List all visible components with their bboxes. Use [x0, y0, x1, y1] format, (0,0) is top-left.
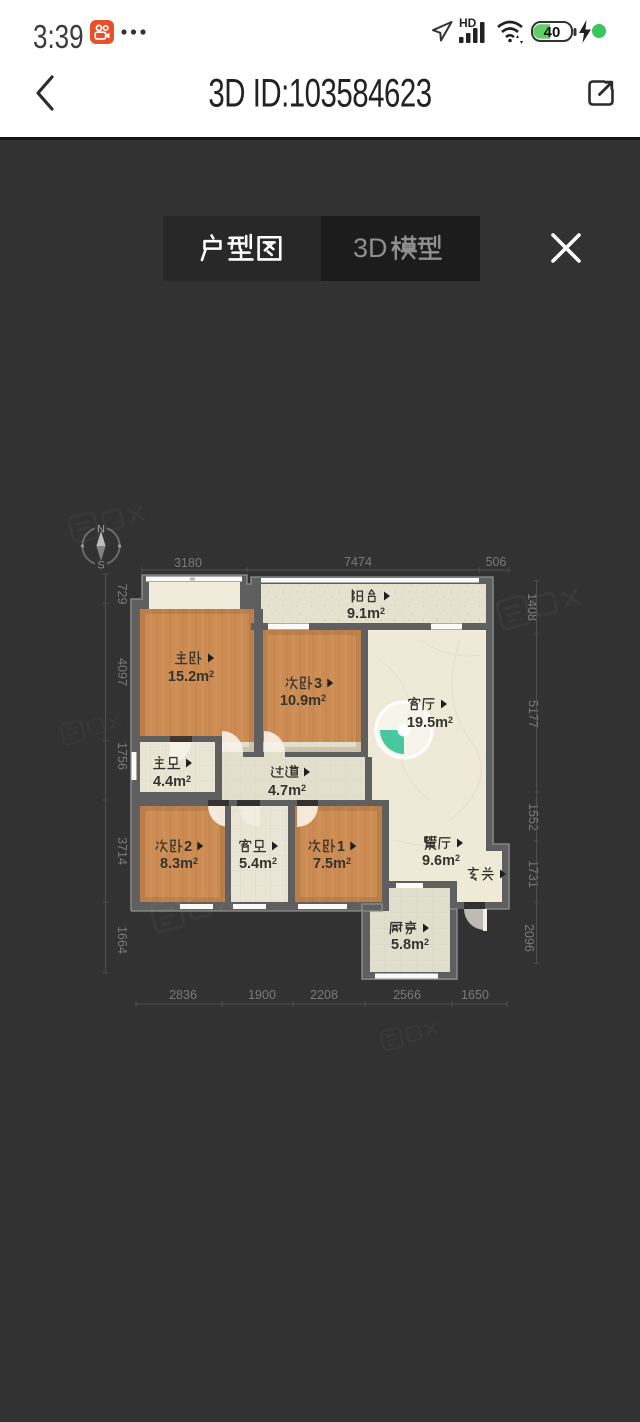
svg-text:5.4m2: 5.4m2: [239, 856, 277, 872]
svg-text:9.6m2: 9.6m2: [422, 853, 460, 869]
svg-text:15.2m2: 15.2m2: [168, 669, 214, 685]
svg-text:5.8m2: 5.8m2: [391, 937, 429, 953]
svg-text:506: 506: [486, 555, 507, 569]
svg-text:2096: 2096: [522, 924, 536, 952]
svg-text:19.5m2: 19.5m2: [407, 715, 453, 731]
svg-text:2208: 2208: [310, 988, 338, 1002]
svg-text:1: 1: [337, 839, 345, 855]
svg-text:8.3m2: 8.3m2: [160, 856, 198, 872]
svg-text:4.7m2: 4.7m2: [268, 783, 306, 799]
svg-text:1664: 1664: [115, 926, 129, 954]
svg-text:7474: 7474: [344, 555, 372, 569]
svg-text:1756: 1756: [115, 742, 129, 770]
svg-text:5177: 5177: [526, 700, 540, 728]
svg-text:1731: 1731: [526, 860, 540, 888]
svg-text:10.9m2: 10.9m2: [280, 693, 326, 709]
svg-text:3: 3: [314, 676, 322, 692]
svg-text:1552: 1552: [526, 803, 540, 831]
svg-text:3714: 3714: [115, 837, 129, 865]
svg-text:2566: 2566: [393, 988, 421, 1002]
svg-text:1650: 1650: [461, 988, 489, 1002]
svg-text:4.4m2: 4.4m2: [153, 774, 191, 790]
svg-text:729: 729: [115, 584, 129, 605]
svg-text:2: 2: [184, 839, 192, 855]
svg-text:7.5m2: 7.5m2: [313, 856, 351, 872]
svg-text:3180: 3180: [174, 556, 202, 570]
svg-text:1900: 1900: [248, 988, 276, 1002]
svg-text:4097: 4097: [115, 658, 129, 686]
svg-text:9.1m2: 9.1m2: [347, 606, 385, 622]
svg-text:2836: 2836: [169, 988, 197, 1002]
